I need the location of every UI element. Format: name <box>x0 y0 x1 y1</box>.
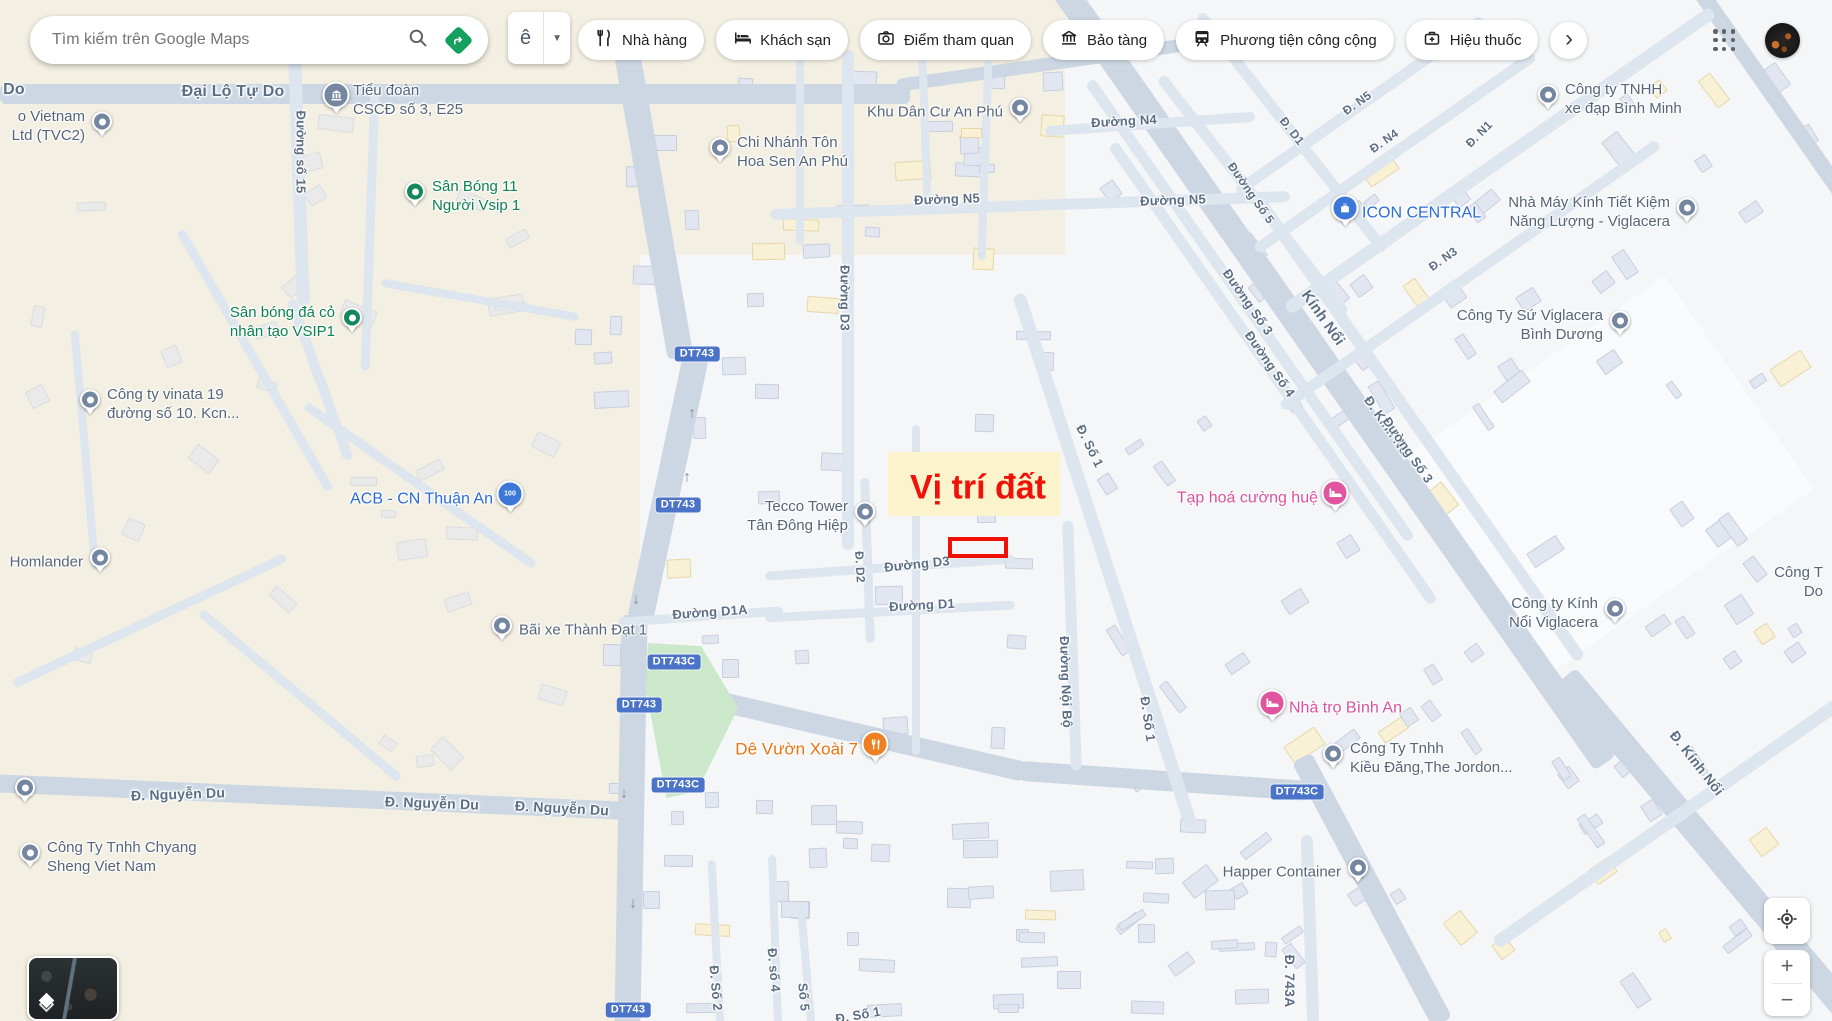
building <box>1049 869 1084 892</box>
dot-icon <box>15 778 35 798</box>
chip-transit[interactable]: Phương tiện công cộng <box>1176 20 1394 60</box>
chip-pharmacies[interactable]: Hiệu thuốc <box>1406 20 1539 60</box>
building <box>803 243 831 258</box>
road <box>1012 292 1197 829</box>
san-bong-da-co-vsip1-pin[interactable] <box>342 308 362 333</box>
building <box>415 754 434 768</box>
nha-tro-binh-an-pin[interactable] <box>1259 689 1286 721</box>
building <box>1019 932 1045 943</box>
happer-container-pin[interactable] <box>1348 858 1368 883</box>
building <box>705 792 720 808</box>
building <box>1591 270 1616 294</box>
cong-ty-kinh-noi-viglacera-pin[interactable] <box>1605 599 1625 624</box>
route-shield: DT743 <box>656 498 701 513</box>
google-maps-window: ↑↑↓↓↓ Đại Lộ Tự DoDoĐường số 15Đường N5Đ… <box>0 0 1832 1021</box>
building <box>871 844 891 863</box>
building <box>1423 663 1443 685</box>
san-bong-11-nguoi-vsip1-pin[interactable] <box>405 182 425 207</box>
building <box>1159 680 1187 713</box>
dot-icon <box>1677 198 1697 218</box>
building <box>968 885 995 899</box>
dot-icon <box>342 308 362 328</box>
de-vuon-xoai-7-pin[interactable] <box>862 730 889 762</box>
road-label: Đ. D2 <box>852 551 868 583</box>
building <box>1742 555 1768 583</box>
my-location-icon <box>1775 907 1799 936</box>
building <box>1389 888 1406 905</box>
building <box>1724 594 1755 626</box>
building <box>1694 154 1713 174</box>
nha-tro-binh-an-label: Nhà trọ Bình An <box>1289 699 1402 718</box>
bed-icon <box>1259 689 1286 716</box>
building <box>381 510 396 519</box>
building <box>747 293 764 308</box>
building <box>1698 72 1730 108</box>
building <box>1235 988 1270 1004</box>
museum-icon <box>1060 29 1078 51</box>
more-categories-button[interactable]: › <box>1550 22 1587 59</box>
dot-icon <box>92 112 112 132</box>
building <box>1131 1000 1164 1014</box>
road <box>768 855 782 1021</box>
cong-ty-kinh-noi-viglacera-label: Công ty KínhNổi Viglacera <box>1509 594 1598 632</box>
transit-icon <box>1193 29 1211 51</box>
bed-icon <box>1322 479 1349 506</box>
input-method-button[interactable]: ê ▼ <box>508 12 570 64</box>
dot-icon <box>1323 744 1343 764</box>
chevron-right-icon: › <box>1565 25 1573 53</box>
building <box>1153 460 1177 487</box>
building <box>1224 652 1250 676</box>
building <box>1463 643 1484 664</box>
search-input[interactable] <box>50 30 398 50</box>
dot-icon <box>710 138 730 158</box>
building <box>811 805 837 825</box>
khu-dan-cu-an-phu-label: Khu Dân Cư An Phú <box>867 103 1003 122</box>
search-button[interactable] <box>398 20 438 60</box>
san-bong-11-nguoi-vsip1-label: Sân Bóng 11Người Vsip 1 <box>432 177 520 215</box>
directions-icon <box>443 25 473 55</box>
route-shield: DT743C <box>1271 785 1324 800</box>
building <box>350 477 377 486</box>
building <box>1769 350 1811 388</box>
road-label: Đ. Nguyễn Du <box>385 793 480 812</box>
tap-hoa-cuong-hue-pin[interactable] <box>1322 479 1349 511</box>
kieu-dang-the-jordon-pin[interactable] <box>1323 744 1343 769</box>
dot-icon <box>1010 98 1030 118</box>
icon-central-label: ICON CENTRAL <box>1362 204 1481 223</box>
road-label: Đường Nội Bộ <box>1057 636 1075 728</box>
road-label: Đ. D1 <box>1277 114 1308 148</box>
bank-icon <box>323 81 350 108</box>
xe-dap-binh-minh-pin[interactable] <box>1538 85 1558 110</box>
chyang-sheng-viet-nam-label: Công Ty Tnhh ChyangSheng Viet Nam <box>47 838 197 876</box>
zoom-in-button[interactable]: + <box>1764 950 1810 983</box>
dot-icon <box>20 843 40 863</box>
building <box>1021 956 1058 968</box>
site-marker-rectangle <box>948 537 1008 558</box>
chi-nhanh-ton-hoa-sen-label: Chi Nhánh TônHoa Sen An Phú <box>737 133 848 171</box>
building <box>836 821 863 835</box>
nha-may-kinh-viglacera-label: Nhà Máy Kính Tiết KiệmNăng Lượng - Vigla… <box>1508 193 1670 231</box>
khu-dan-cu-an-phu-pin[interactable] <box>1010 98 1030 123</box>
building <box>684 210 699 231</box>
icon-central-pin[interactable] <box>1332 194 1359 226</box>
cong-ty-su-viglacera-pin[interactable] <box>1610 311 1630 336</box>
building <box>1025 909 1056 920</box>
cong-t-cutoff-label: Công TDo <box>1774 563 1823 601</box>
dot-icon <box>405 182 425 202</box>
building <box>1420 699 1442 722</box>
building <box>1211 939 1239 950</box>
road-label: Đường số 15 <box>294 111 309 194</box>
building <box>643 891 660 909</box>
hotel-icon <box>733 29 751 51</box>
building <box>702 635 719 645</box>
tieu-doan-cscd-label: Tiểu đoànCSCĐ số 3, E25 <box>353 81 463 119</box>
chip-label: Phương tiện công cộng <box>1220 32 1377 49</box>
building <box>776 881 789 902</box>
my-location-button[interactable] <box>1764 898 1810 944</box>
building <box>594 390 630 409</box>
building <box>1753 623 1776 646</box>
san-bong-da-co-vsip1-label: Sân bóng đá cỏnhân tạo VSIP1 <box>230 303 335 341</box>
building <box>865 226 881 237</box>
chip-attractions[interactable]: Điểm tham quan <box>860 20 1031 60</box>
chip-label: Nhà hàng <box>622 32 687 49</box>
building <box>1749 827 1780 858</box>
directions-button[interactable] <box>438 20 478 60</box>
restaurant-icon <box>595 29 613 51</box>
kieu-dang-the-jordon-label: Công Ty TnhhKiều Đăng,The Jordon... <box>1350 739 1513 777</box>
chip-label: Khách sạn <box>760 32 831 49</box>
map-canvas[interactable]: ↑↑↓↓↓ Đại Lộ Tự DoDoĐường số 15Đường N5Đ… <box>0 0 1832 1021</box>
building <box>1264 942 1277 958</box>
building <box>975 414 995 433</box>
chip-label: Điểm tham quan <box>904 32 1014 49</box>
road-label: Đ. N3 <box>1426 244 1460 274</box>
building <box>1749 372 1768 389</box>
dot-icon <box>492 616 512 636</box>
building <box>1674 615 1695 639</box>
building <box>1611 249 1639 281</box>
tieu-doan-cscd-pin[interactable] <box>323 81 350 113</box>
homlander-pin[interactable] <box>90 548 110 573</box>
road-label: Đ. số 4 <box>765 947 784 992</box>
building <box>952 822 990 840</box>
building <box>795 650 810 665</box>
dot-icon <box>855 502 875 522</box>
building <box>1644 613 1671 637</box>
building <box>1124 438 1144 455</box>
tecco-tower-tan-dong-hiep-label: Tecco TowerTân Đông Hiệp <box>747 497 848 535</box>
site-annotation-label: Vị trí đất <box>910 469 1046 508</box>
road-label: Đường N5 <box>914 190 980 207</box>
fork-icon <box>862 730 889 757</box>
road-label: Số 5 <box>795 982 812 1011</box>
chip-label: Hiệu thuốc <box>1450 32 1522 49</box>
google-apps-button[interactable] <box>1713 29 1736 52</box>
building <box>1138 924 1155 943</box>
building <box>664 855 693 868</box>
dot-icon <box>1610 311 1630 331</box>
layers-icon <box>38 995 56 1011</box>
acb-cn-thuan-an-label: ACB - CN Thuận An <box>350 490 493 509</box>
route-shield: DT743 <box>617 698 662 713</box>
oneway-arrow-icon: ↑ <box>683 469 691 486</box>
road-label: Đường N5 <box>1140 191 1206 208</box>
building <box>859 958 896 973</box>
building <box>1738 200 1764 224</box>
acb-cn-thuan-an-pin[interactable]: 100 <box>497 480 524 512</box>
building <box>961 128 982 138</box>
building <box>756 800 773 814</box>
dot-icon <box>1605 599 1625 619</box>
road-label: Đ. Số 1 <box>834 1004 881 1021</box>
building <box>671 811 684 825</box>
building <box>1167 951 1195 977</box>
satellite-layer-toggle[interactable] <box>27 956 119 1021</box>
building <box>1143 892 1169 903</box>
bai-xe-thanh-dat-1-pin[interactable] <box>492 616 512 641</box>
xe-dap-binh-minh-label: Công ty TNHHxe đạp Bình Minh <box>1565 80 1682 118</box>
building <box>1240 832 1273 861</box>
route-shield: DT743C <box>652 778 705 793</box>
pharmacy-icon <box>1423 29 1441 51</box>
cong-ty-vinata-19-pin[interactable] <box>80 390 100 415</box>
oneway-arrow-icon: ↓ <box>629 895 637 912</box>
building <box>1619 972 1652 1009</box>
oneway-arrow-icon: ↓ <box>620 785 628 802</box>
road-label: Đại Lộ Tự Do <box>182 83 285 101</box>
nha-may-kinh-viglacera-pin[interactable] <box>1677 198 1697 223</box>
building <box>1043 71 1064 91</box>
tecco-tower-tan-dong-hiep-pin[interactable] <box>855 502 875 527</box>
road-label: Đ. N1 <box>1463 118 1495 150</box>
chyang-sheng-viet-nam-pin[interactable] <box>20 843 40 868</box>
bai-xe-thanh-dat-1-label: Bãi xe Thành Đạt 1 <box>519 621 647 640</box>
road-label: Đ. Số 2 <box>707 965 726 1012</box>
building <box>963 840 998 859</box>
chip-label: Bảo tàng <box>1087 32 1147 49</box>
homlander-label: Homlander <box>10 553 83 572</box>
building <box>755 384 779 399</box>
chevron-down-icon[interactable]: ▼ <box>543 12 570 64</box>
road-label: Đường D1A <box>672 602 748 622</box>
building <box>1097 472 1119 496</box>
building <box>1155 858 1175 875</box>
building <box>722 659 739 678</box>
road-label: Đường D3 <box>838 265 853 331</box>
tap-hoa-cuong-hue-label: Tạp hoá cường huệ <box>1177 489 1318 508</box>
road-label: Do <box>3 81 25 99</box>
building <box>1057 971 1081 989</box>
route-shield: DT743C <box>648 655 701 670</box>
account-avatar[interactable] <box>1765 23 1800 58</box>
route-shield: DT743 <box>675 347 720 362</box>
tvc2-pin[interactable] <box>92 112 112 137</box>
cong-ty-su-viglacera-label: Công Ty Sứ ViglaceraBình Dương <box>1457 306 1603 344</box>
building <box>1205 889 1236 910</box>
money-icon: 100 <box>497 480 524 507</box>
building <box>990 727 1005 750</box>
building <box>1280 588 1309 615</box>
building <box>1722 650 1742 670</box>
road-label: Đ. Nguyễn Du <box>131 784 226 803</box>
category-chips: Nhà hàng Khách sạn Điểm tham quan Bảo tà… <box>578 20 1587 60</box>
dot-icon <box>1348 858 1368 878</box>
oneway-arrow-icon: ↑ <box>688 405 696 422</box>
chi-nhanh-ton-hoa-sen-pin[interactable] <box>710 138 730 163</box>
oneway-arrow-icon: ↓ <box>632 591 640 608</box>
building <box>843 838 859 850</box>
pin-nguyen-du-pin[interactable] <box>15 778 35 803</box>
building <box>1007 634 1027 649</box>
building <box>1349 274 1374 298</box>
building <box>722 357 747 376</box>
zoom-out-button[interactable]: − <box>1764 984 1810 1017</box>
building <box>1783 641 1806 664</box>
de-vuon-xoai-7-label: Dê Vườn Xoài 7 <box>735 740 858 759</box>
happer-container-label: Happer Container <box>1223 863 1341 882</box>
search-icon <box>407 27 429 54</box>
building <box>1787 622 1803 638</box>
dot-icon <box>90 548 110 568</box>
dot-icon <box>1538 85 1558 105</box>
cong-ty-vinata-19-label: Công ty vinata 19đường số 10. Kcn... <box>107 385 239 423</box>
search-bar[interactable] <box>30 16 488 64</box>
route-shield: DT743 <box>606 1003 651 1018</box>
building <box>575 329 593 346</box>
building <box>1443 910 1478 946</box>
building <box>847 932 859 946</box>
building <box>610 316 623 335</box>
dot-icon <box>80 390 100 410</box>
building <box>808 848 827 869</box>
building <box>806 296 839 314</box>
building <box>1336 534 1360 559</box>
building <box>1126 861 1153 870</box>
building <box>594 351 613 364</box>
chip-hotels[interactable]: Khách sạn <box>716 20 848 60</box>
keyboard-key-label: ê <box>508 12 543 64</box>
chip-restaurants[interactable]: Nhà hàng <box>578 20 704 60</box>
bag-icon <box>1332 194 1359 221</box>
building <box>1658 928 1672 943</box>
chip-museums[interactable]: Bảo tàng <box>1043 20 1164 60</box>
building <box>998 1004 1019 1013</box>
zoom-control: + − <box>1764 950 1810 1016</box>
camera-icon <box>877 29 895 51</box>
building <box>752 243 785 261</box>
building <box>1281 925 1304 945</box>
building <box>77 201 106 211</box>
building <box>667 558 692 578</box>
building <box>1196 415 1212 432</box>
building <box>603 644 621 666</box>
tvc2-label: o VietnamLtd (TVC2) <box>12 107 85 145</box>
road-label: Đ. 743A <box>1282 955 1298 1008</box>
